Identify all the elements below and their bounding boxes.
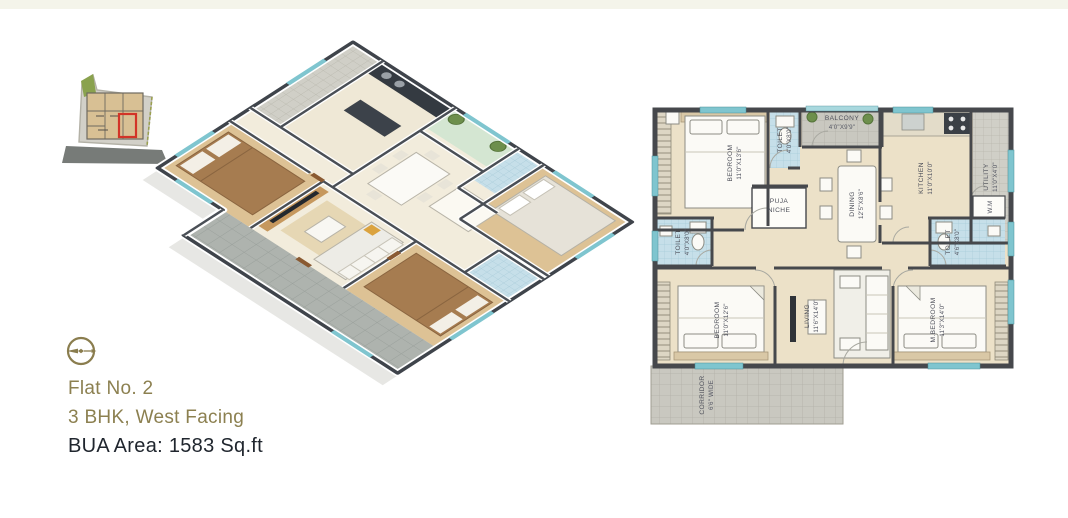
svg-text:KITCHEN: KITCHEN [918,162,925,194]
svg-text:11'3"X14'0": 11'3"X14'0" [939,303,946,336]
svg-text:11'0"X12'6": 11'0"X12'6" [723,303,730,336]
svg-text:11'0"X4'0": 11'0"X4'0" [992,162,999,192]
svg-text:TOILET: TOILET [675,229,682,254]
svg-text:M.BEDROOM: M.BEDROOM [930,298,937,343]
svg-text:BEDROOM: BEDROOM [714,302,721,339]
svg-text:6'6" WIDE: 6'6" WIDE [708,380,715,410]
svg-text:4'0"X8'0": 4'0"X8'0" [684,229,691,255]
svg-text:4'0"X9'9": 4'0"X9'9" [829,124,855,131]
brochure-canvas: BEDROOM 11'0"X13'6" TOILET 4'0"X8'0" BAL… [0,0,1068,518]
svg-text:4'6"X8'0": 4'6"X8'0" [954,229,961,255]
wardrobe [995,282,1008,360]
svg-text:DINING: DINING [849,191,856,216]
svg-text:4'0"X8'0": 4'0"X8'0" [786,127,793,153]
svg-text:PUJA: PUJA [770,198,789,205]
flat-number: Flat No. 2 [68,374,263,403]
tv-unit [790,296,796,342]
room-label-wm: W.M [987,201,994,214]
kitchen-counter-2d [882,112,971,136]
flat-configuration: 3 BHK, West Facing [68,403,263,432]
svg-text:TOILET: TOILET [945,229,952,254]
svg-text:TOILET: TOILET [777,127,784,152]
svg-text:NICHE: NICHE [768,207,791,214]
corridor-tiles [651,366,843,424]
floorplan-2d: BEDROOM 11'0"X13'6" TOILET 4'0"X8'0" BAL… [648,100,1020,432]
svg-text:LIVING: LIVING [804,304,811,328]
svg-text:BEDROOM: BEDROOM [727,145,734,182]
svg-text:11'0"X13'6": 11'0"X13'6" [736,146,743,179]
svg-text:11'0"X10'0": 11'0"X10'0" [927,161,934,194]
top-strip [0,0,1068,9]
floorplan-3d-isometric [95,20,640,415]
bua-area: BUA Area: 1583 Sq.ft [68,432,263,461]
plant [863,114,873,124]
wardrobe [657,282,670,360]
plant [807,112,817,122]
compass-west-icon [64,334,98,368]
wardrobe [657,112,671,214]
svg-text:BALCONY: BALCONY [825,115,860,122]
svg-text:UTILITY: UTILITY [983,163,990,191]
flat-details: Flat No. 2 3 BHK, West Facing BUA Area: … [68,374,263,461]
svg-text:11'6"X14'0": 11'6"X14'0" [813,299,820,332]
svg-text:W.M: W.M [987,201,994,214]
stove-burners [944,113,970,134]
svg-text:12'5"X8'6": 12'5"X8'6" [858,189,865,219]
svg-text:CORRIDOR: CORRIDOR [699,375,706,414]
bed-2 [674,286,768,360]
